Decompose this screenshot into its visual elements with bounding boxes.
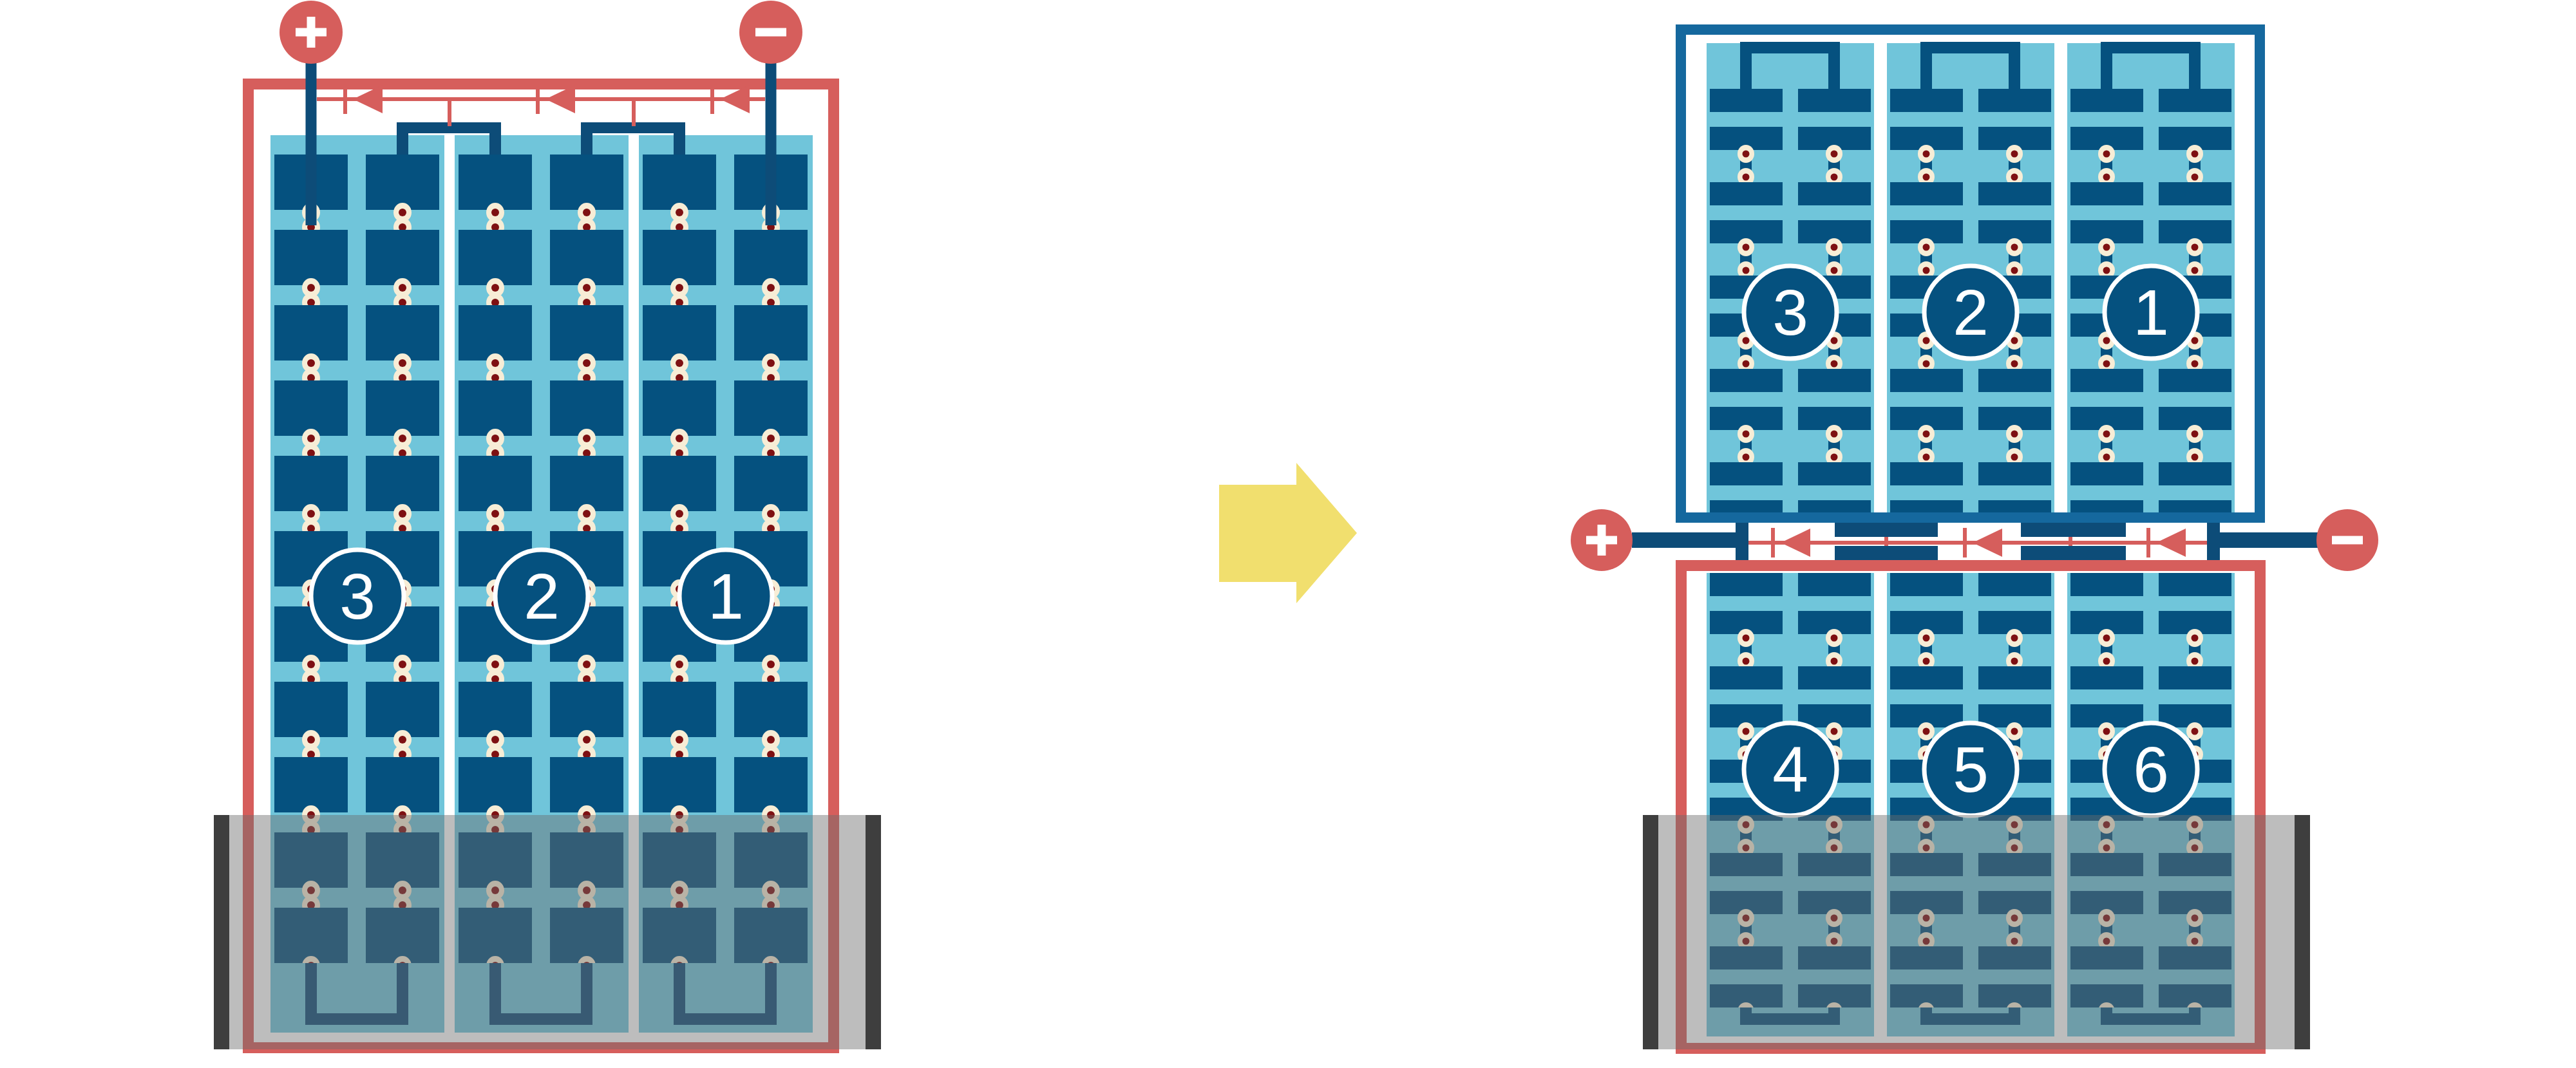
string-label: 3	[339, 560, 375, 632]
bypass-diode-circuit	[317, 84, 765, 126]
string-label-badge: 5	[1924, 723, 2017, 816]
string-label: 6	[2133, 733, 2169, 805]
string-label-badge: 6	[2105, 723, 2197, 816]
mounting-rail	[214, 815, 881, 1049]
negative-terminal	[739, 1, 802, 64]
rail-end-cap	[866, 815, 881, 1049]
negative-terminal	[2316, 509, 2378, 571]
junction-riser	[2207, 523, 2220, 560]
rail-overlay	[1643, 815, 2310, 1049]
junction-riser	[1736, 523, 1748, 560]
diode-circuit-line	[317, 97, 765, 101]
string-label-badge: 2	[495, 550, 588, 642]
string-label: 4	[1772, 733, 1808, 805]
rail-overlay	[214, 815, 881, 1049]
pv-module-series-connection-diagram: 3 2 1	[0, 0, 2576, 1068]
junction-bus	[1632, 523, 2324, 560]
string-label-badge: 3	[1744, 266, 1837, 359]
string-label: 1	[2133, 276, 2169, 348]
junction-tab	[1835, 523, 1938, 537]
terminal-lead	[766, 61, 777, 225]
terminal-lead	[1632, 532, 1736, 548]
terminal-lead	[306, 61, 317, 225]
module-bottom: 4 5 6	[1643, 566, 2310, 1050]
transform-arrow-icon	[1219, 463, 1357, 603]
rail-end-cap	[214, 815, 229, 1049]
string-label-badge: 3	[311, 550, 404, 642]
junction-tab	[1835, 546, 1938, 560]
module-single: 3 2 1	[214, 1, 881, 1049]
string-label: 1	[708, 560, 744, 632]
module-top: 3 2 1	[1681, 30, 2260, 518]
string-label: 2	[524, 560, 560, 632]
circuit-stub	[632, 97, 636, 126]
positive-terminal	[1571, 509, 1633, 571]
minus-icon	[2332, 536, 2363, 545]
string-label: 3	[1772, 276, 1808, 348]
string-label: 5	[1953, 733, 1989, 805]
rail-end-cap	[1643, 815, 1658, 1049]
terminal-lead	[2220, 532, 2324, 548]
module-stack: 3 2 1	[1571, 30, 2378, 1049]
junction-tab	[2021, 546, 2126, 560]
string-label-badge: 1	[2105, 266, 2197, 359]
string-label: 2	[1953, 276, 1989, 348]
string-label-badge: 4	[1744, 723, 1837, 816]
string-label-badge: 2	[1924, 266, 2017, 359]
positive-terminal	[279, 1, 343, 64]
mounting-rail	[1643, 815, 2310, 1049]
string-label-badge: 1	[679, 550, 772, 642]
circuit-stub	[448, 97, 451, 126]
minus-icon	[755, 28, 786, 37]
diagram-canvas: 3 2 1	[0, 0, 2576, 1068]
junction-tab	[2021, 523, 2126, 537]
rail-end-cap	[2295, 815, 2310, 1049]
